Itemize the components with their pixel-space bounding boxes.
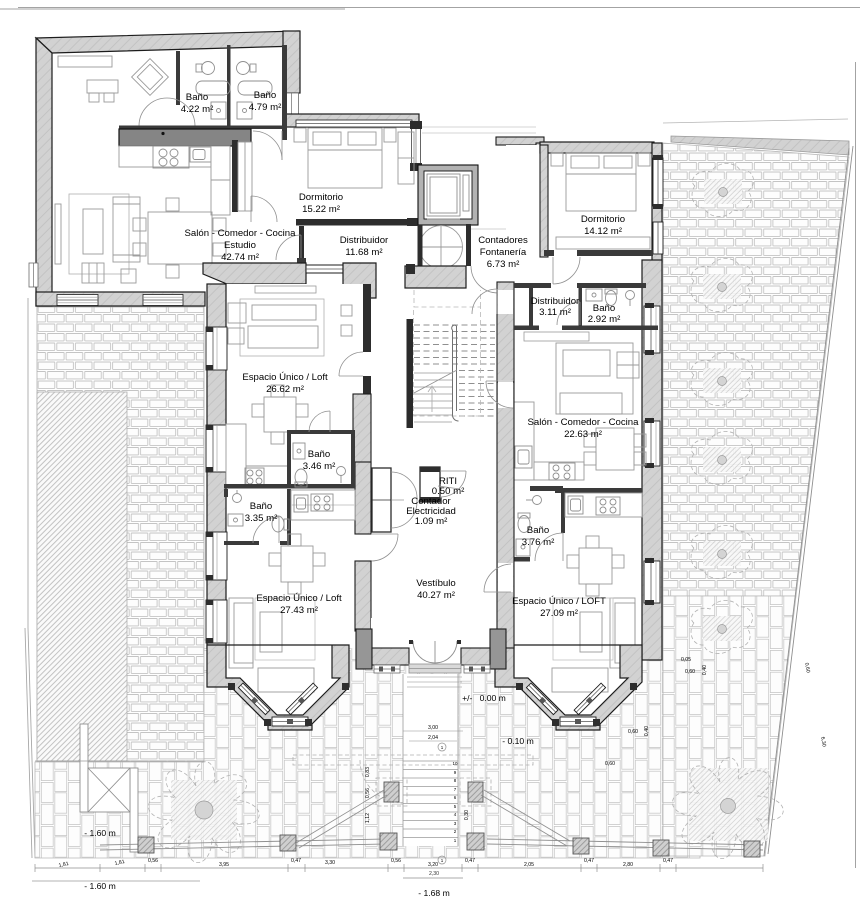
svg-text:Baño: Baño (308, 449, 330, 460)
svg-text:Salón - Comedor - Cocina: Salón - Comedor - Cocina (185, 228, 297, 239)
svg-text:40.27 m²: 40.27 m² (417, 590, 456, 601)
svg-text:3,20: 3,20 (428, 862, 438, 868)
svg-text:Distribuidor: Distribuidor (340, 235, 389, 246)
svg-text:- 1.60 m: - 1.60 m (84, 881, 116, 891)
svg-text:3,00: 3,00 (428, 725, 438, 731)
svg-text:3.11 m²: 3.11 m² (539, 307, 572, 318)
svg-text:27.43 m²: 27.43 m² (280, 605, 319, 616)
svg-text:Salón - Comedor - Cocina: Salón - Comedor - Cocina (528, 417, 640, 428)
svg-text:0,60: 0,60 (605, 761, 615, 767)
svg-text:0,40: 0,40 (702, 665, 708, 675)
svg-text:Baño: Baño (254, 90, 276, 101)
svg-text:2,30: 2,30 (429, 871, 439, 877)
svg-text:1.09 m²: 1.09 m² (415, 516, 448, 527)
svg-text:2.92 m²: 2.92 m² (588, 314, 621, 325)
svg-text:0,56: 0,56 (365, 788, 371, 798)
svg-text:0,83: 0,83 (365, 767, 371, 777)
svg-text:Espacio Único / LOFT: Espacio Único / LOFT (512, 596, 606, 607)
svg-text:42.74 m²: 42.74 m² (221, 252, 260, 263)
svg-text:Baño: Baño (250, 501, 272, 512)
svg-text:0,47: 0,47 (663, 858, 673, 864)
svg-text:14.12 m²: 14.12 m² (584, 226, 623, 237)
svg-text:0,47: 0,47 (291, 858, 301, 864)
svg-text:11.68 m²: 11.68 m² (345, 247, 383, 258)
svg-text:Contadores: Contadores (478, 235, 528, 246)
svg-text:Dormitorio: Dormitorio (299, 192, 343, 203)
svg-text:10: 10 (452, 761, 458, 766)
svg-text:2,05: 2,05 (524, 862, 534, 868)
svg-text:Baño: Baño (186, 92, 208, 103)
svg-text:- 1.68 m: - 1.68 m (418, 888, 450, 898)
svg-text:26.62 m²: 26.62 m² (266, 384, 305, 395)
svg-text:0,30: 0,30 (464, 810, 470, 820)
svg-text:0,47: 0,47 (584, 858, 594, 864)
svg-text:Estudio: Estudio (224, 240, 256, 251)
svg-text:27.09 m²: 27.09 m² (540, 608, 579, 619)
svg-text:6.73 m²: 6.73 m² (487, 259, 520, 270)
svg-text:- 0.10 m: - 0.10 m (502, 736, 534, 746)
svg-text:Distribuidor: Distribuidor (531, 296, 580, 307)
svg-text:2,04: 2,04 (428, 735, 438, 741)
svg-text:0,47: 0,47 (465, 858, 475, 864)
svg-text:3.46 m²: 3.46 m² (303, 461, 336, 472)
svg-text:0,05: 0,05 (681, 657, 691, 663)
svg-text:0,60: 0,60 (685, 669, 695, 675)
svg-text:Espacio Único / Loft: Espacio Único / Loft (242, 372, 328, 383)
svg-text:3.76 m²: 3.76 m² (522, 537, 555, 548)
svg-text:4.79 m²: 4.79 m² (249, 102, 282, 113)
svg-text:2,80: 2,80 (623, 862, 633, 868)
svg-text:3.35 m²: 3.35 m² (245, 513, 278, 524)
svg-text:15.22 m²: 15.22 m² (302, 204, 341, 215)
svg-text:Dormitorio: Dormitorio (581, 214, 625, 225)
svg-text:3,95: 3,95 (219, 862, 229, 868)
svg-text:0,40: 0,40 (644, 726, 650, 736)
svg-text:Baño: Baño (527, 525, 549, 536)
svg-text:1,12: 1,12 (365, 813, 371, 823)
svg-text:0,60: 0,60 (628, 729, 638, 735)
svg-text:- 1.60 m: - 1.60 m (84, 828, 116, 838)
svg-text:4.22 m²: 4.22 m² (181, 104, 214, 115)
svg-text:+/- 0.00 m: +/- 0.00 m (462, 693, 506, 703)
svg-text:Baño: Baño (593, 303, 615, 314)
svg-text:22.63 m²: 22.63 m² (564, 429, 603, 440)
svg-text:Vestíbulo: Vestíbulo (416, 578, 455, 589)
svg-text:0,56: 0,56 (148, 858, 158, 864)
svg-text:0,56: 0,56 (391, 858, 401, 864)
svg-text:Espacio Único / Loft: Espacio Único / Loft (256, 593, 342, 604)
svg-text:3,30: 3,30 (325, 860, 335, 866)
svg-text:Fontanería: Fontanería (480, 247, 527, 258)
